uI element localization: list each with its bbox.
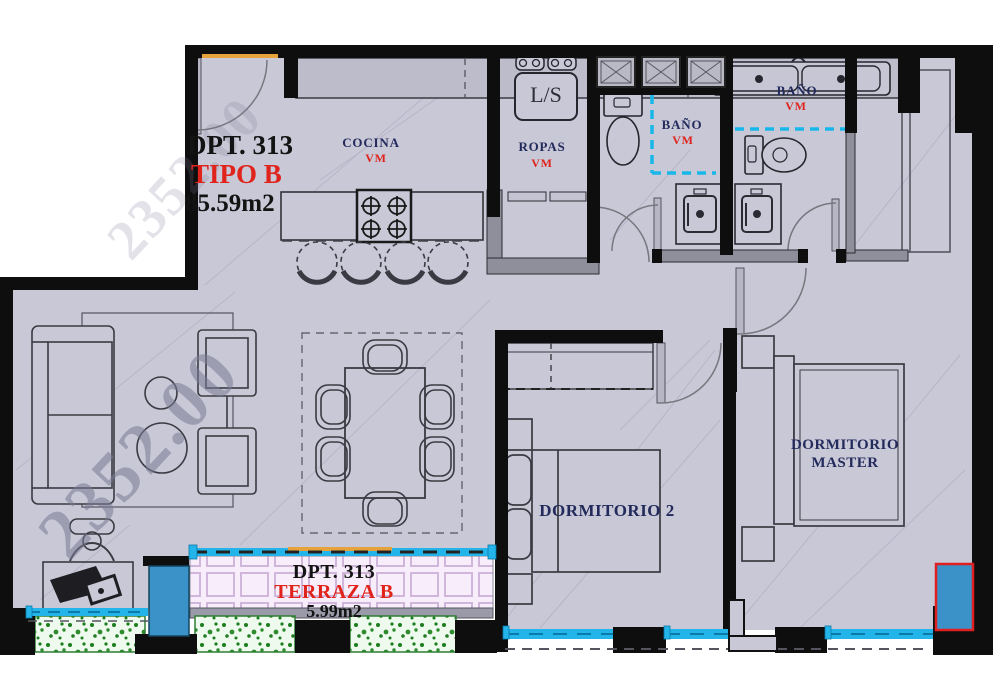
- finish-tag: VM: [785, 99, 807, 114]
- finish-tag: VM: [531, 156, 553, 171]
- room-label-master-2: MASTER: [811, 455, 878, 472]
- toilet-icon: [604, 94, 642, 165]
- laundry-machine-label: L/S: [530, 82, 562, 108]
- unit-number: DPT. 313: [187, 130, 293, 161]
- unit-area: 85.59m2: [185, 190, 275, 218]
- glass-panel: [149, 566, 189, 636]
- terrace-area: 5.99m2: [306, 601, 362, 622]
- unit-type: TIPO B: [191, 159, 282, 190]
- duct-icon: [597, 57, 725, 87]
- finish-tag: VM: [672, 133, 694, 148]
- room-label-master-1: DORMITORIO: [791, 437, 899, 454]
- room-label-bano: BAÑO: [662, 117, 703, 133]
- toilet-icon: [745, 136, 806, 174]
- finish-tag: VM: [365, 151, 387, 166]
- room-label-cocina: COCINA: [342, 135, 400, 151]
- room-label-ropas: ROPAS: [518, 139, 565, 155]
- corner-window: [936, 564, 973, 630]
- room-label-bano-master: BAÑO: [777, 83, 818, 99]
- stove-icon: [357, 190, 411, 242]
- plan-drawing: [0, 0, 1000, 700]
- floor-plan: 2352.00 2352.00 DPT. 313 TIPO B 85.59m2 …: [0, 0, 1000, 700]
- entry-threshold: [202, 54, 278, 58]
- room-label-dormitorio2: DORMITORIO 2: [539, 501, 675, 521]
